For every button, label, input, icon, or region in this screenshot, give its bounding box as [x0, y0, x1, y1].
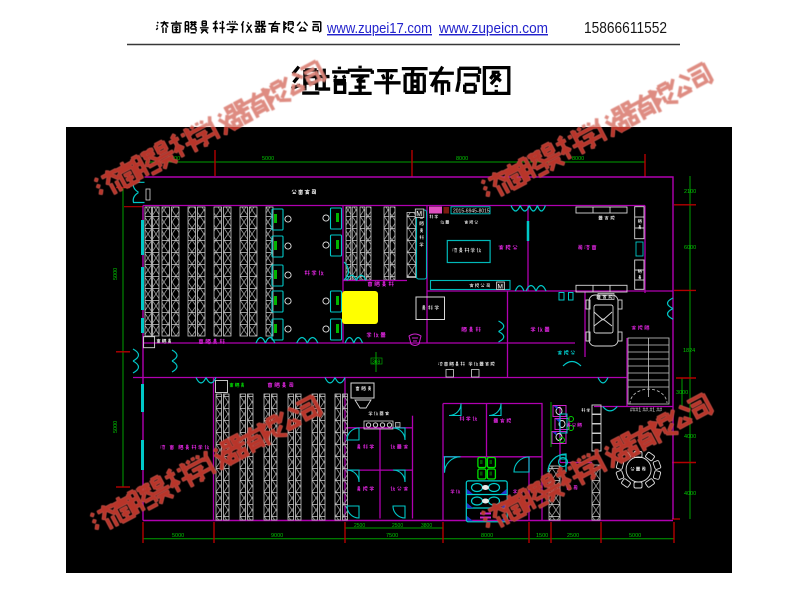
svg-text:8000: 8000 — [481, 533, 493, 539]
svg-text:2500: 2500 — [392, 523, 403, 529]
svg-text:3000: 3000 — [676, 390, 688, 396]
svg-text:9000: 9000 — [271, 533, 283, 539]
svg-text:7500: 7500 — [386, 533, 398, 539]
svg-text:2500: 2500 — [354, 523, 365, 529]
svg-text:www.zupeicn.com: www.zupeicn.com — [438, 21, 548, 37]
svg-text:4000: 4000 — [684, 491, 696, 497]
svg-text:8000: 8000 — [572, 156, 584, 162]
svg-text:2100: 2100 — [684, 189, 696, 195]
svg-text:www.zupei17.com: www.zupei17.com — [326, 21, 432, 37]
svg-text:2015-6945-8015: 2015-6945-8015 — [453, 209, 490, 215]
svg-text:5000: 5000 — [113, 268, 119, 280]
svg-text:8000: 8000 — [456, 156, 468, 162]
svg-text:3800: 3800 — [421, 523, 432, 529]
svg-text:2500: 2500 — [567, 533, 579, 539]
svg-text:15866611552: 15866611552 — [584, 20, 667, 37]
svg-text:1824: 1824 — [683, 348, 695, 354]
svg-text:4000: 4000 — [684, 434, 696, 440]
svg-text:1500: 1500 — [536, 533, 548, 539]
svg-text:M: M — [416, 211, 422, 218]
svg-text:5000: 5000 — [172, 533, 184, 539]
svg-text:5000: 5000 — [629, 533, 641, 539]
svg-text:5000: 5000 — [113, 421, 119, 433]
svg-text:5000: 5000 — [262, 156, 274, 162]
svg-text:M: M — [498, 284, 503, 291]
svg-text:6000: 6000 — [684, 245, 696, 251]
svg-text:369: 369 — [372, 360, 381, 366]
svg-text:###1 ##.#1 ##: ###1 ##.#1 ## — [630, 408, 662, 414]
